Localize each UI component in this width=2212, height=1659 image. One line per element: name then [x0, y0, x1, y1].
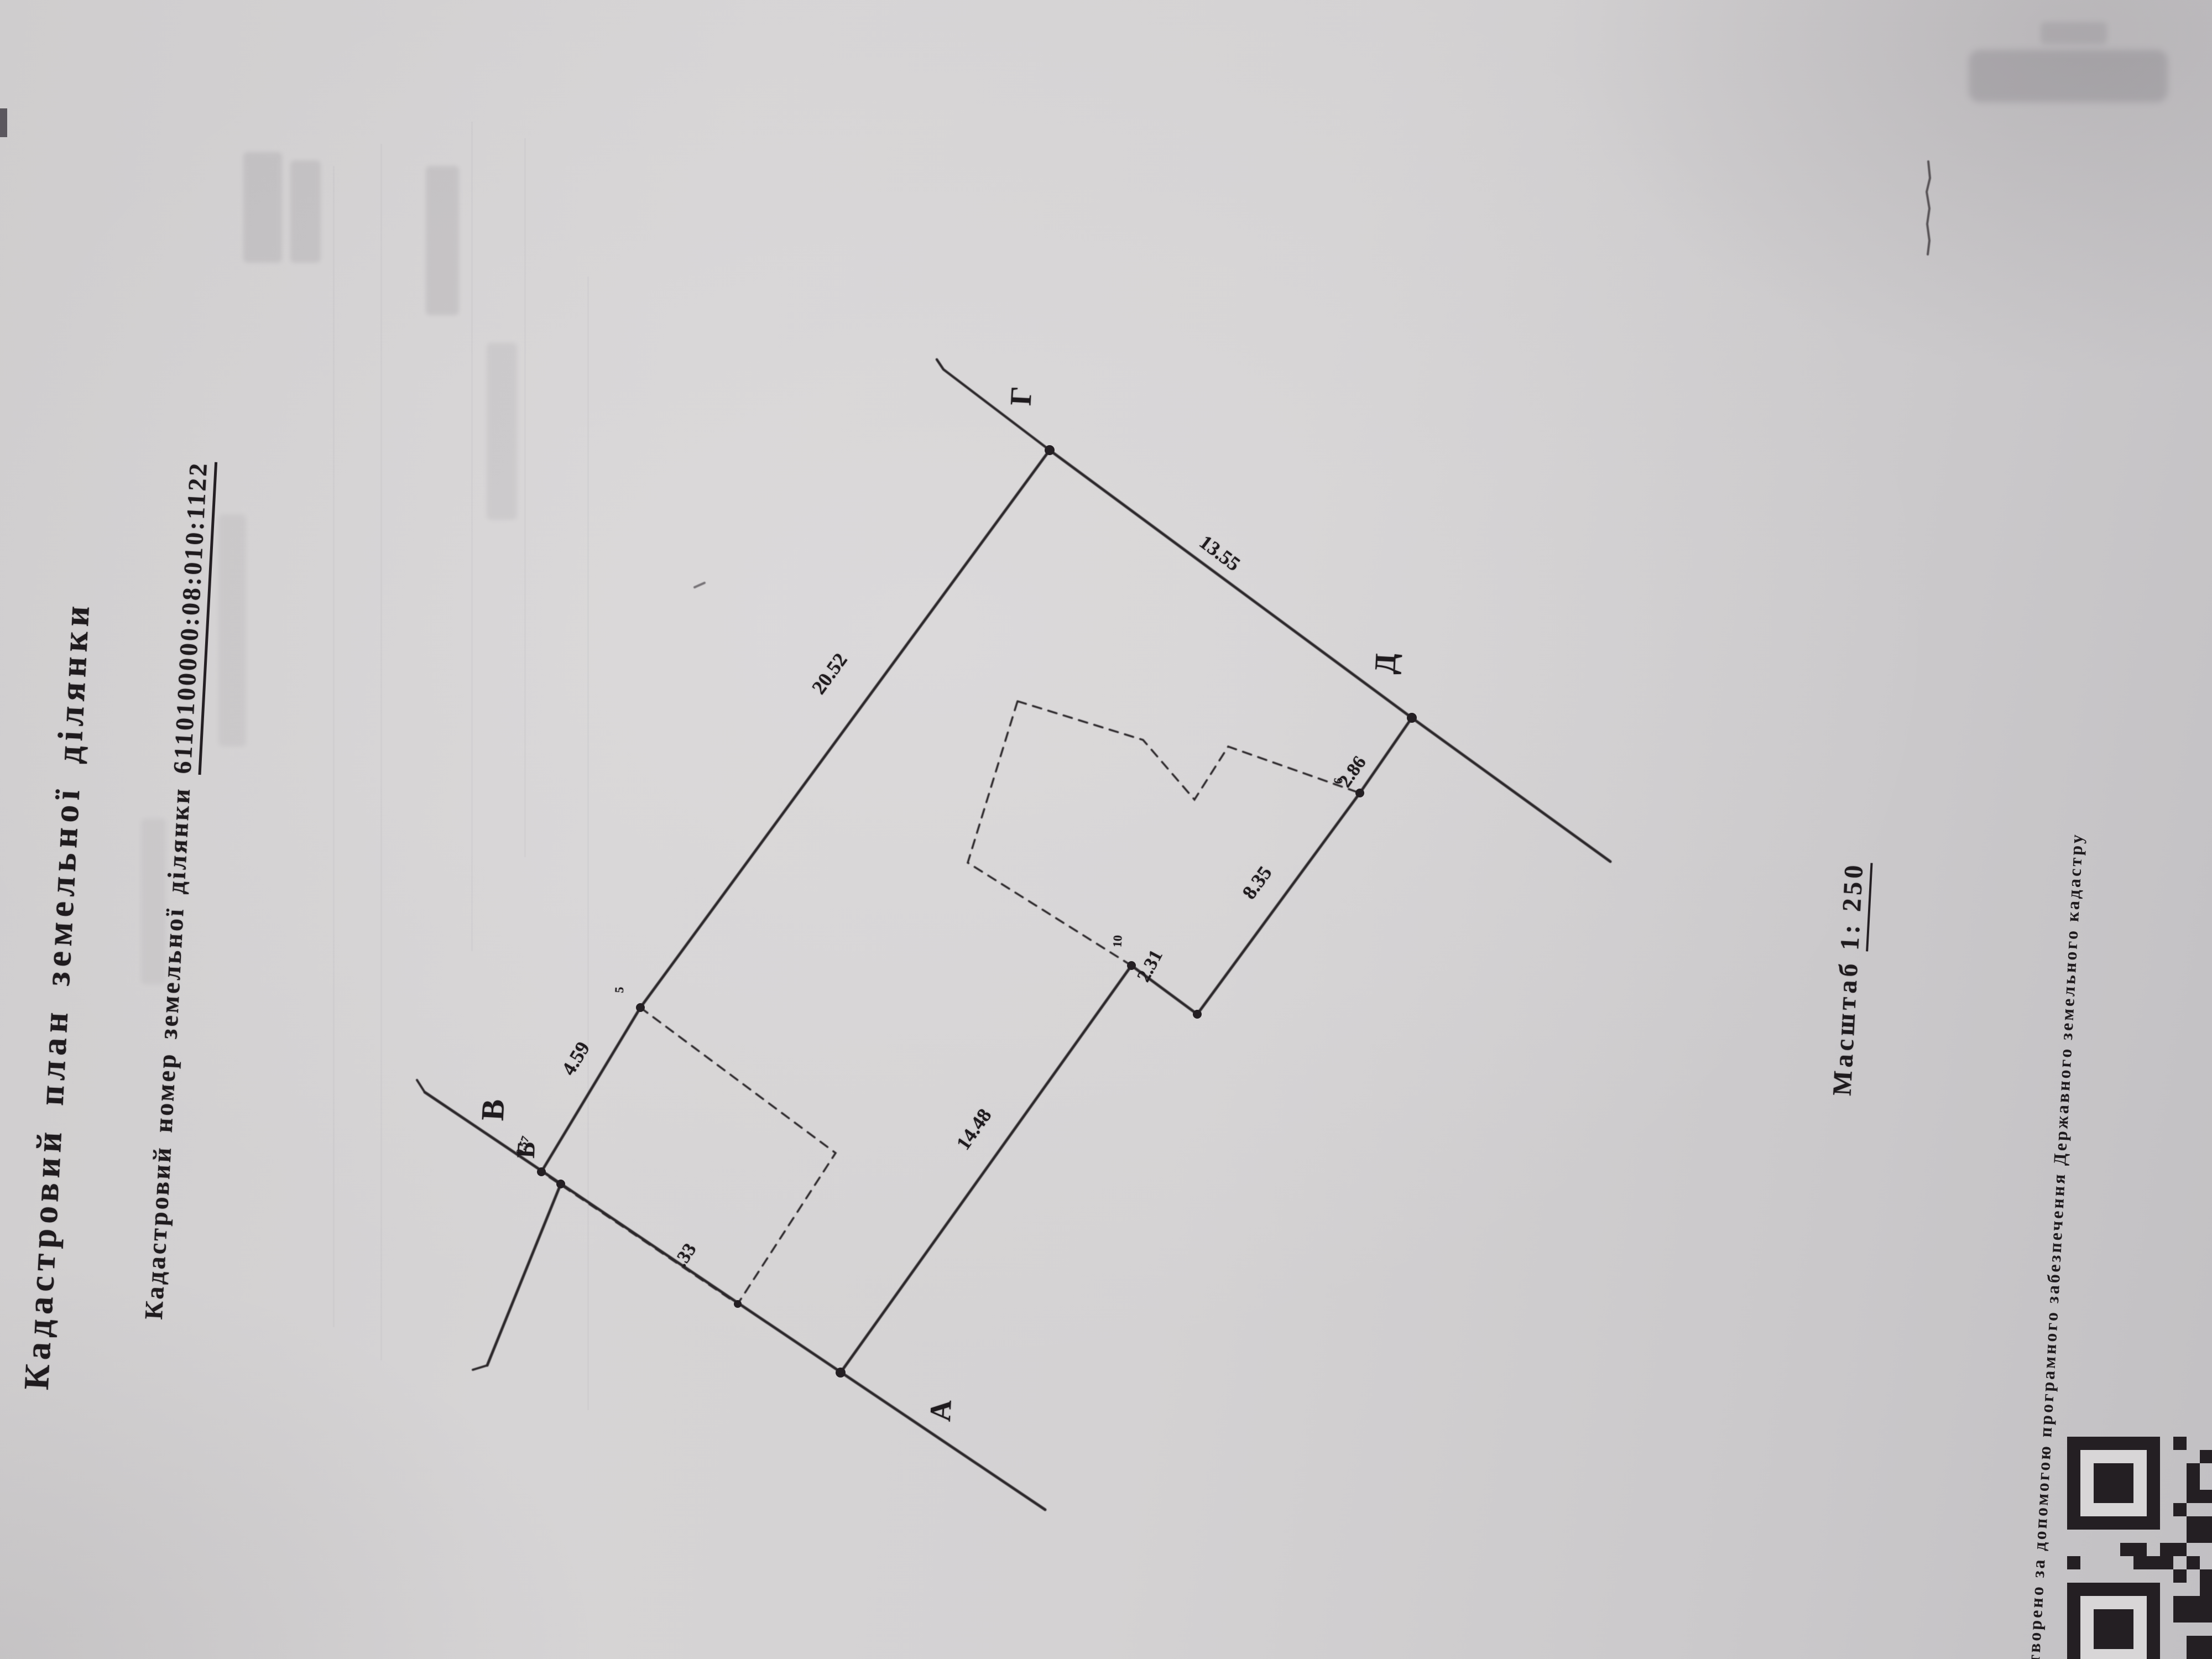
point-label-d: Д: [1368, 653, 1403, 675]
side-branch-line: [487, 1184, 561, 1365]
point-number-10: 10: [1110, 935, 1125, 947]
branch-end-tick: [473, 1365, 487, 1370]
boundary-10-a: [841, 966, 1131, 1373]
point-label-a: А: [923, 1399, 958, 1422]
scratch-artifact: [1927, 161, 1930, 254]
vertex-dots: [537, 445, 1417, 1378]
street-end-tick: [417, 1080, 425, 1092]
boundary-6-7: [1197, 793, 1360, 1014]
point-number-5: 5: [612, 987, 627, 993]
point-label-v: В: [474, 1098, 512, 1121]
tiny-mark: [695, 583, 705, 587]
point-label-g: Г: [1003, 385, 1039, 406]
plan-drawing: [0, 0, 2212, 1659]
document-photo: Кадастровий план земельної ділянки Кадас…: [0, 0, 2212, 1659]
boundary-g-d: [1050, 450, 1610, 862]
boundary-d-6: [1360, 718, 1412, 793]
qr-code: [2067, 1437, 2212, 1659]
boundary-5-g: [640, 450, 1050, 1008]
building-outline-right: [968, 701, 1360, 966]
boundary-v-5: [541, 1008, 640, 1172]
